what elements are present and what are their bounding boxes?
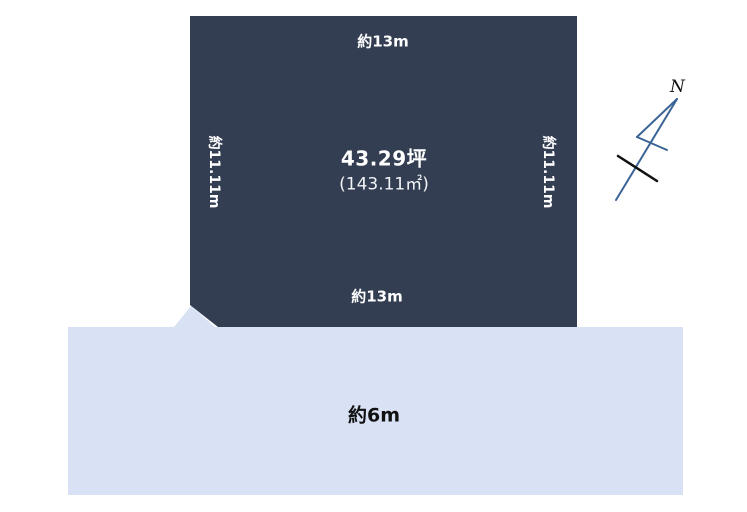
plot-area-sqm-label: (143.11㎡) [339, 170, 429, 195]
compass-cross-tick-line [618, 156, 657, 181]
north-compass-icon: N [598, 62, 708, 212]
plot-top-dimension-label: 約13m [357, 31, 409, 52]
plot-area-tsubo-label: 43.29坪 [341, 143, 427, 172]
road-width-label: 約6m [348, 401, 400, 428]
compass-north-letter: N [669, 77, 686, 97]
plot-left-dimension-label: 約11.11m [205, 136, 225, 209]
plot-right-dimension-label: 約11.11m [539, 136, 559, 209]
plot-bottom-dimension-label: 約13m [351, 286, 403, 307]
land-plot-diagram: 約13m 約13m 約11.11m 約11.11m 43.29坪 (143.11… [0, 0, 747, 512]
